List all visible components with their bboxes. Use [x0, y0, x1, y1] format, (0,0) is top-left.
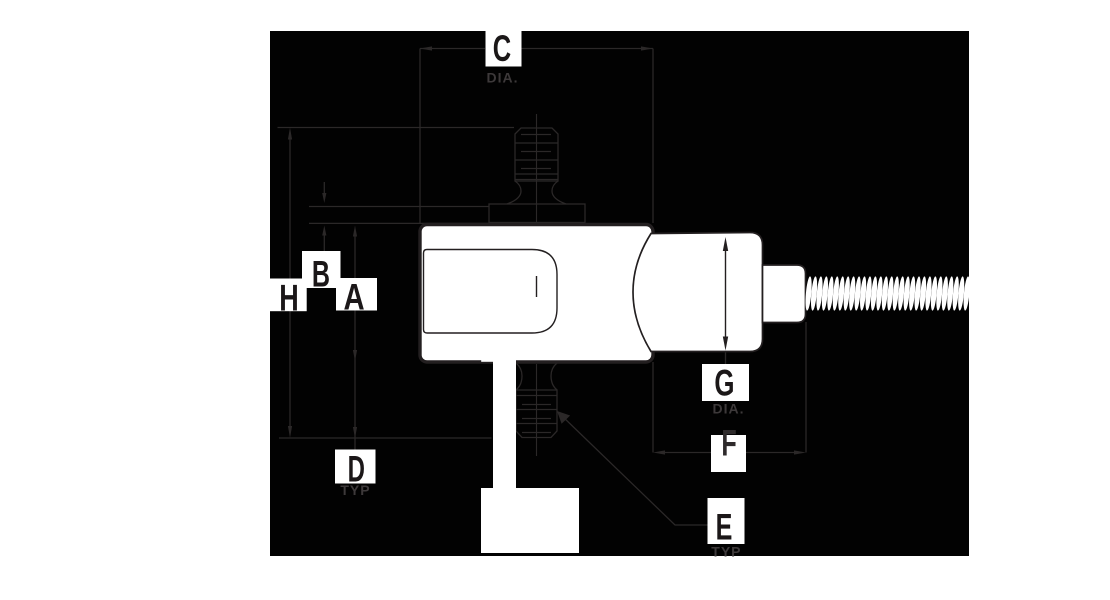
svg-text:DIA.: DIA.: [487, 70, 519, 86]
svg-text:B: B: [312, 252, 330, 294]
svg-text:A: A: [343, 277, 364, 318]
svg-text:H: H: [279, 276, 298, 318]
svg-text:E: E: [716, 505, 733, 547]
svg-text:TYP: TYP: [340, 482, 370, 498]
svg-text:C: C: [493, 27, 511, 69]
svg-text:G: G: [714, 362, 734, 404]
svg-text:DIA.: DIA.: [713, 401, 745, 417]
svg-text:F: F: [721, 421, 736, 463]
svg-text:TYP: TYP: [711, 544, 741, 560]
